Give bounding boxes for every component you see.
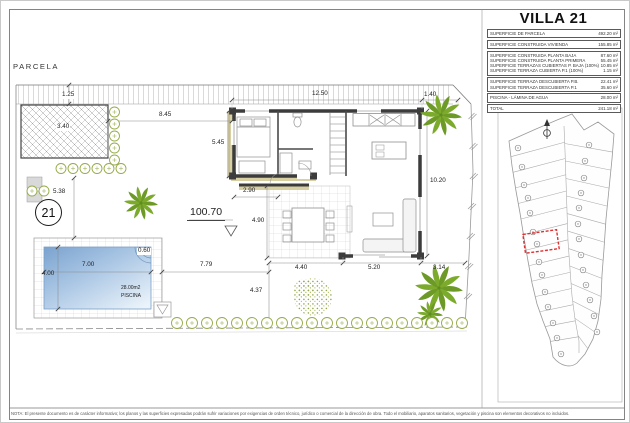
shrub <box>292 318 303 329</box>
plan-sheet: PARCELA 100.70 28.00m2 PISCINA 1.253.408… <box>0 0 630 423</box>
area-value: 35.60 m² <box>601 85 618 90</box>
area-label: SUPERFICIE CONSTRUIDA VIVIENDA <box>490 42 568 47</box>
area-table-row: SUPERFICIE TERRAZA DESCUBIERTA P.135.60 … <box>490 85 618 90</box>
area-table-group: PISCINA - LÁMINA DE AGUA28.00 m² <box>487 93 621 102</box>
shrub <box>427 318 438 329</box>
area-value: 241.18 m² <box>598 106 618 111</box>
shrub <box>307 318 318 329</box>
area-label: SUPERFICIE DE PARCELA <box>490 31 545 36</box>
shrub <box>27 186 37 196</box>
shrub <box>442 318 453 329</box>
shrub <box>382 318 393 329</box>
shrub <box>337 318 348 329</box>
shrub <box>110 119 120 129</box>
shrub <box>322 318 333 329</box>
area-table-group: TOTAL241.18 m² <box>487 104 621 113</box>
shrub <box>247 318 258 329</box>
shrub <box>217 318 228 329</box>
villa-title: VILLA 21 <box>483 10 624 27</box>
surface-area-table: SUPERFICIE DE PARCELA492.20 m²SUPERFICIE… <box>487 29 621 113</box>
area-table-group: SUPERFICIE DE PARCELA492.20 m² <box>487 29 621 38</box>
area-label: TOTAL <box>490 106 504 111</box>
shrub <box>172 318 183 329</box>
shrub <box>232 318 243 329</box>
shrub <box>80 164 90 174</box>
area-label: PISCINA - LÁMINA DE AGUA <box>490 95 548 100</box>
shrub <box>352 318 363 329</box>
shrub <box>202 318 213 329</box>
area-value: 155.85 m² <box>598 42 618 47</box>
area-label: SUPERFICIE TERRAZA CUBIERTA P.1 (100%) <box>490 68 583 73</box>
area-table-group: SUPERFICIE TERRAZA DESCUBIERTA P.B.22.41… <box>487 77 621 92</box>
shrub-texture <box>294 279 314 299</box>
shrub <box>39 186 49 196</box>
shrub <box>110 107 120 117</box>
shrub <box>412 318 423 329</box>
shrub <box>92 164 102 174</box>
shrub <box>104 164 114 174</box>
area-table-row: SUPERFICIE TERRAZA CUBIERTA P.1 (100%)1.… <box>490 68 618 73</box>
plot-number-badge: 21 <box>35 199 62 226</box>
shrub <box>110 131 120 141</box>
shrub <box>457 318 468 329</box>
shrub <box>116 164 126 174</box>
shrub <box>56 164 66 174</box>
shrub <box>277 318 288 329</box>
shrub <box>68 164 78 174</box>
area-value: 28.00 m² <box>601 95 618 100</box>
footer-disclaimer: NOTA: El presente documento es de caráct… <box>11 411 623 416</box>
shrub <box>187 318 198 329</box>
area-value: 1.15 m² <box>603 68 618 73</box>
area-table-row: TOTAL241.18 m² <box>490 106 618 111</box>
swimming-pool <box>34 238 171 318</box>
area-label: SUPERFICIE TERRAZA DESCUBIERTA P.1 <box>490 85 577 90</box>
info-panel: VILLA 21 SUPERFICIE DE PARCELA492.20 m²S… <box>483 9 624 408</box>
shrub <box>262 318 273 329</box>
area-table-row: SUPERFICIE CONSTRUIDA VIVIENDA155.85 m² <box>490 42 618 47</box>
area-table-row: PISCINA - LÁMINA DE AGUA28.00 m² <box>490 95 618 100</box>
shrub <box>367 318 378 329</box>
area-table-row: SUPERFICIE DE PARCELA492.20 m² <box>490 31 618 36</box>
area-value: 492.20 m² <box>598 31 618 36</box>
shrub <box>397 318 408 329</box>
area-table-group: SUPERFICIE CONSTRUIDA PLANTA BAJA87.60 m… <box>487 51 621 76</box>
area-table-group: SUPERFICIE CONSTRUIDA VIVIENDA155.85 m² <box>487 40 621 49</box>
shrub <box>110 143 120 153</box>
